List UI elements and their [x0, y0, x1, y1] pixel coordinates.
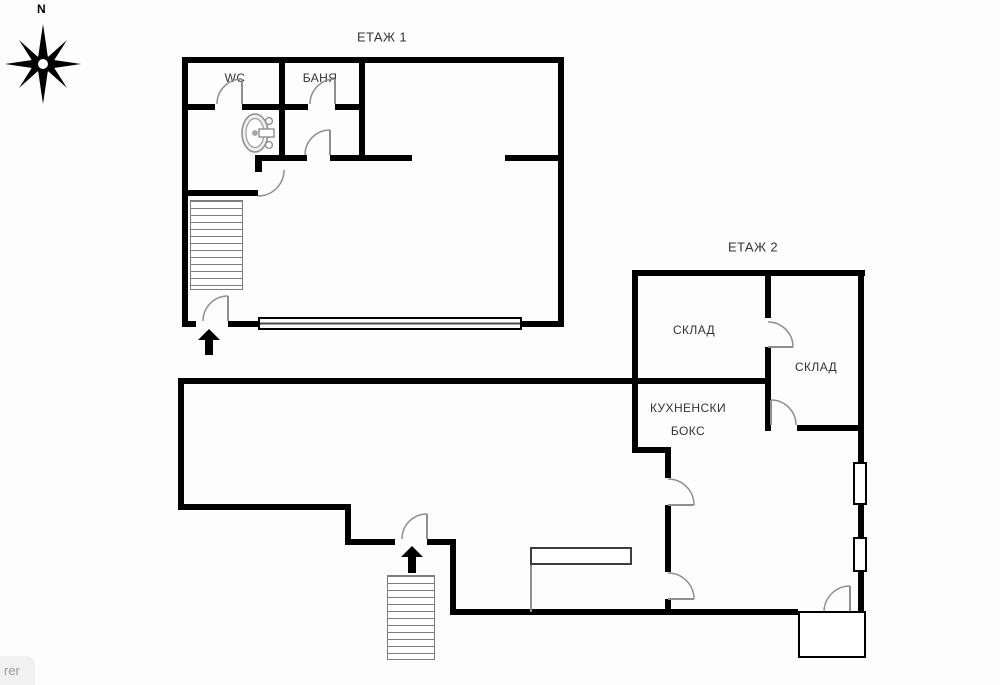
door-swing-arc	[824, 586, 850, 612]
compass-rose-icon	[3, 22, 89, 112]
door-swing-arc	[771, 400, 796, 425]
wall-segment	[255, 155, 307, 161]
wall-segment	[558, 57, 564, 327]
door-swing-arc	[305, 130, 330, 155]
wall-segment	[228, 321, 258, 327]
door-swing-arc	[668, 479, 694, 505]
wall-segment	[335, 104, 365, 110]
room-label-kitchen-line2: БОКС	[671, 424, 705, 438]
window-symbol-right-upper	[853, 462, 867, 505]
wall-segment	[765, 347, 771, 431]
window-symbol-long	[258, 317, 522, 330]
wall-segment	[632, 270, 638, 384]
floor2-title: ЕТАЖ 2	[728, 240, 778, 255]
room-label-storage1: СКЛАД	[673, 323, 715, 337]
wall-segment	[178, 378, 771, 384]
floor1-title: ЕТАЖ 1	[357, 30, 407, 45]
wc-room-box	[798, 611, 866, 658]
room-label-bath: БАНЯ	[303, 71, 338, 85]
wall-segment	[182, 190, 258, 196]
bar-counter	[530, 547, 632, 565]
wall-segment	[182, 321, 196, 327]
door-swings-layer	[0, 0, 1000, 685]
stairs-floor2	[387, 575, 435, 660]
wall-segment	[178, 378, 184, 510]
window-symbol-right-lower	[853, 537, 867, 572]
wall-segment	[345, 539, 395, 545]
wall-segment	[255, 155, 262, 172]
wall-segment	[178, 504, 351, 510]
wall-segment	[665, 447, 671, 478]
wall-segment	[505, 155, 558, 161]
wall-segment	[632, 270, 865, 276]
wall-segment	[450, 539, 456, 615]
stairs-floor1	[190, 200, 243, 290]
wall-segment	[797, 425, 864, 431]
floorplan-canvas: N ЕТАЖ 1 WC БАНЯ ЕТАЖ 2 СКЛАД СКЛАД КУХН…	[0, 0, 1000, 685]
door-swing-arc	[668, 573, 694, 599]
wall-segment	[182, 57, 564, 63]
door-swing-arc	[768, 322, 793, 347]
wall-segment	[450, 609, 798, 615]
wall-segment	[665, 505, 671, 572]
room-label-kitchen-line1: КУХНЕНСКИ	[650, 401, 726, 415]
wall-segment	[632, 378, 638, 453]
room-label-wc-floor1: WC	[225, 71, 246, 85]
wall-segment	[765, 270, 771, 318]
door-swing-arc	[402, 514, 427, 539]
door-swing-arc	[203, 296, 228, 321]
wall-segment	[520, 321, 564, 327]
bar-counter-side	[530, 565, 532, 612]
wall-segment	[279, 104, 308, 110]
sink-icon	[241, 109, 277, 157]
wall-segment	[330, 155, 412, 161]
door-swing-arc	[258, 170, 284, 196]
room-label-storage2: СКЛАД	[795, 360, 837, 374]
wall-segment	[182, 104, 215, 110]
compass-north-label: N	[37, 2, 46, 16]
status-tooltip: rer	[0, 656, 35, 685]
wall-segment	[665, 599, 671, 615]
